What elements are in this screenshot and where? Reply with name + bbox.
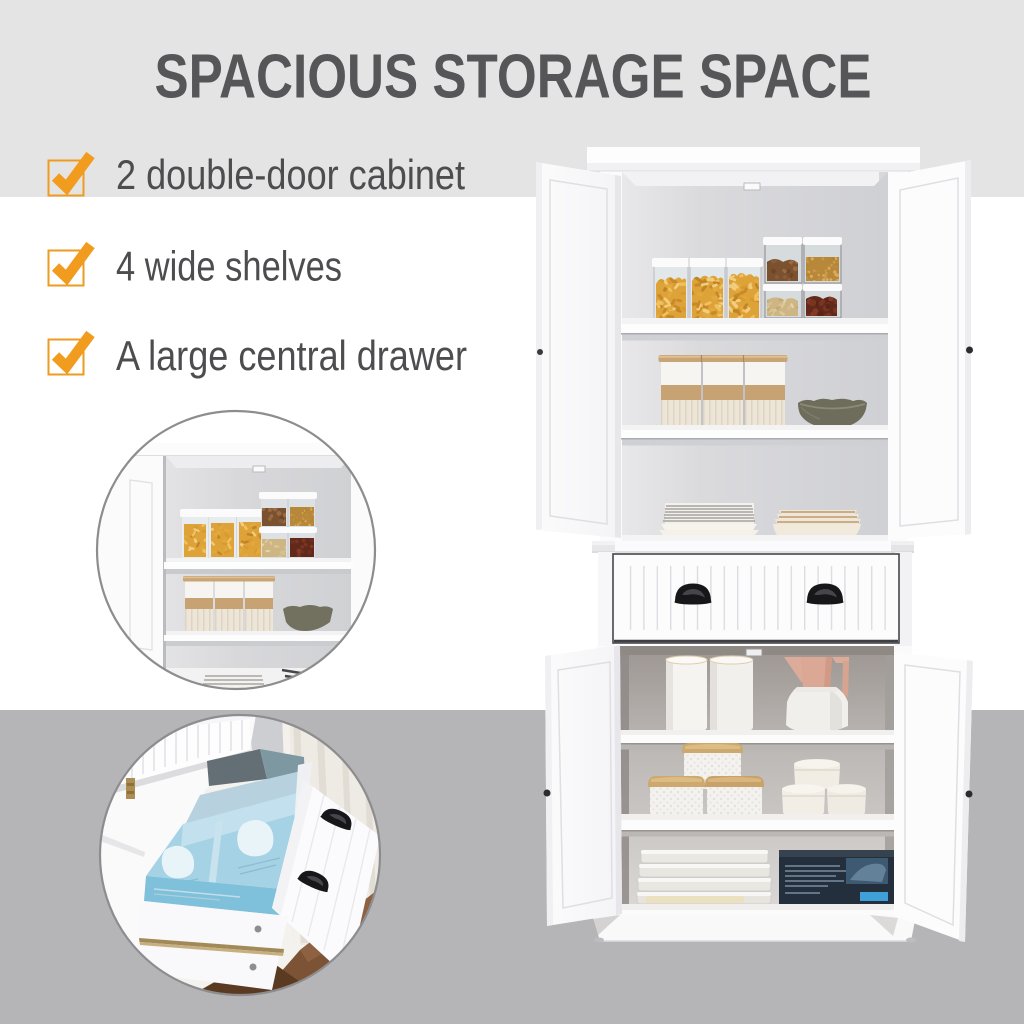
svg-text:SPACIOUS STORAGE SPACE: SPACIOUS STORAGE SPACE (155, 42, 872, 112)
svg-text:2 double-door cabinet: 2 double-door cabinet (116, 151, 465, 198)
svg-text:A large central drawer: A large central drawer (116, 332, 467, 379)
svg-text:4 wide shelves: 4 wide shelves (116, 243, 342, 290)
